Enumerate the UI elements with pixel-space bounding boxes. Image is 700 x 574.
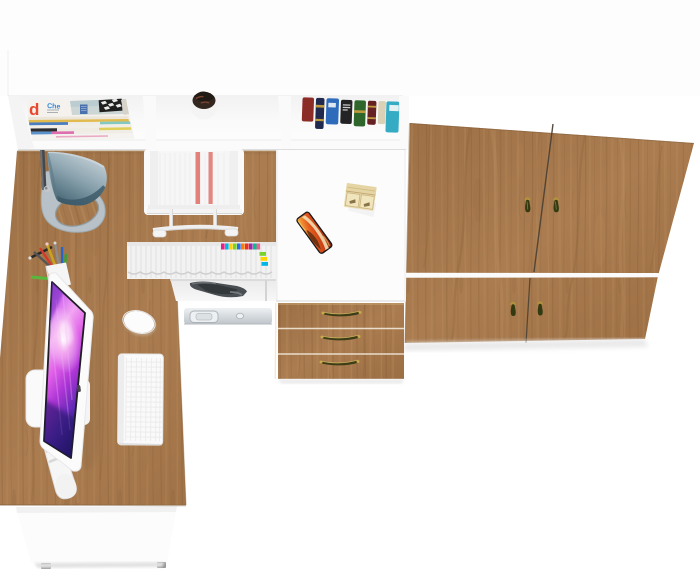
svg-text:d: d [29, 100, 39, 119]
svg-text:Che: Che [47, 103, 61, 111]
